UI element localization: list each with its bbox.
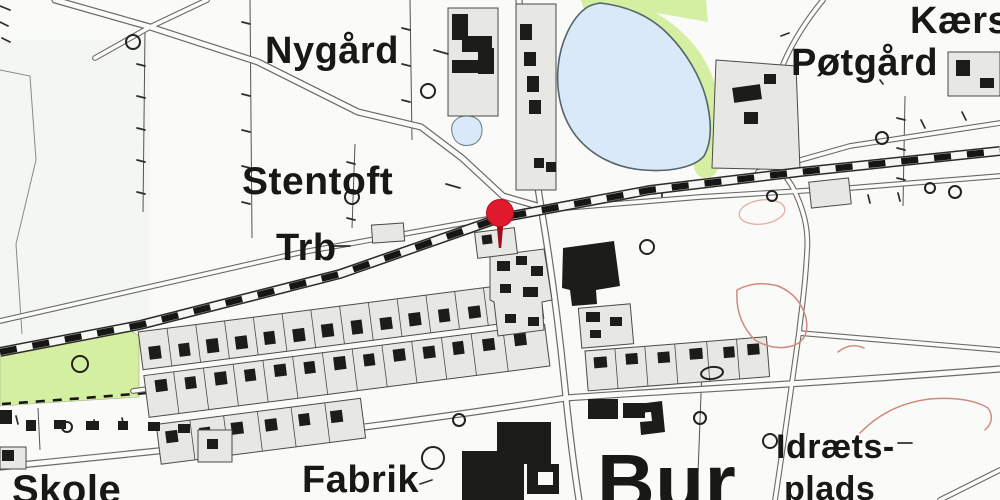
place-label-kaersgaard: Kærsg: [910, 0, 1000, 42]
crossing-building-parcel: [475, 228, 518, 259]
skole-building: [2, 450, 14, 461]
place-label-poetgaard: Pøtgård: [791, 42, 938, 84]
pond: [452, 116, 482, 146]
place-label-idraetsplads-line1: Idræts-: [776, 428, 895, 466]
trb-halt-building: [371, 223, 404, 243]
map-canvas[interactable]: Nygård Kærsg Pøtgård Stentoft Trb Skole …: [0, 0, 1000, 500]
place-label-stentoft: Stentoft: [242, 160, 393, 203]
map-image: Nygård Kærsg Pøtgård Stentoft Trb Skole …: [0, 0, 1000, 500]
place-label-fabrik: Fabrik: [302, 459, 419, 500]
place-label-idraetsplads-line2: plads: [784, 470, 875, 500]
place-label-bur: Bur: [597, 438, 736, 500]
place-label-trb: Trb: [276, 227, 337, 269]
place-label-nygaard: Nygård: [265, 30, 399, 72]
place-label-skole: Skole: [12, 468, 121, 500]
map-pin-head: [487, 200, 514, 227]
